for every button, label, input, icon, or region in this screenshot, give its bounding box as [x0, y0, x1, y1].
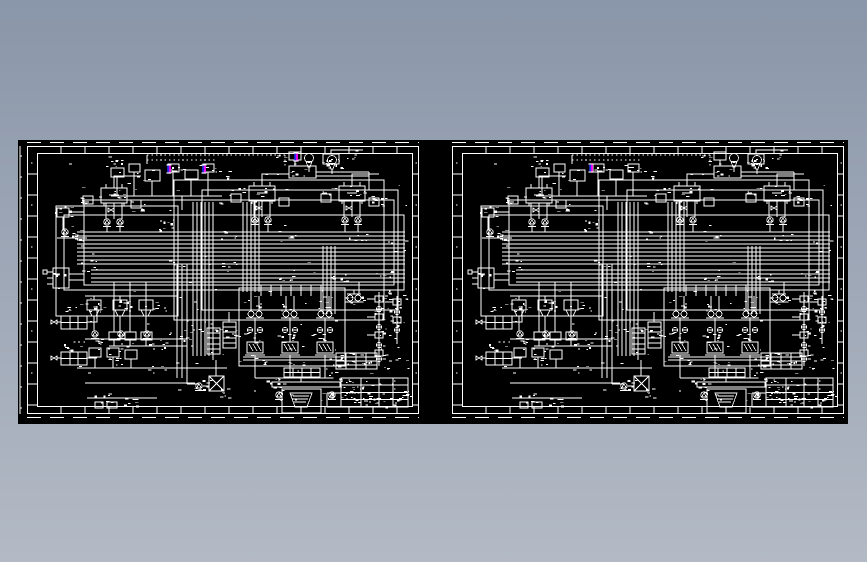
revision-marker-icon — [294, 152, 299, 161]
revision-marker-icon — [589, 163, 594, 172]
cad-drawing-canvas — [18, 140, 848, 424]
desktop-background — [0, 0, 867, 562]
revision-marker-icon — [167, 164, 172, 173]
revision-marker-icon — [202, 164, 207, 173]
